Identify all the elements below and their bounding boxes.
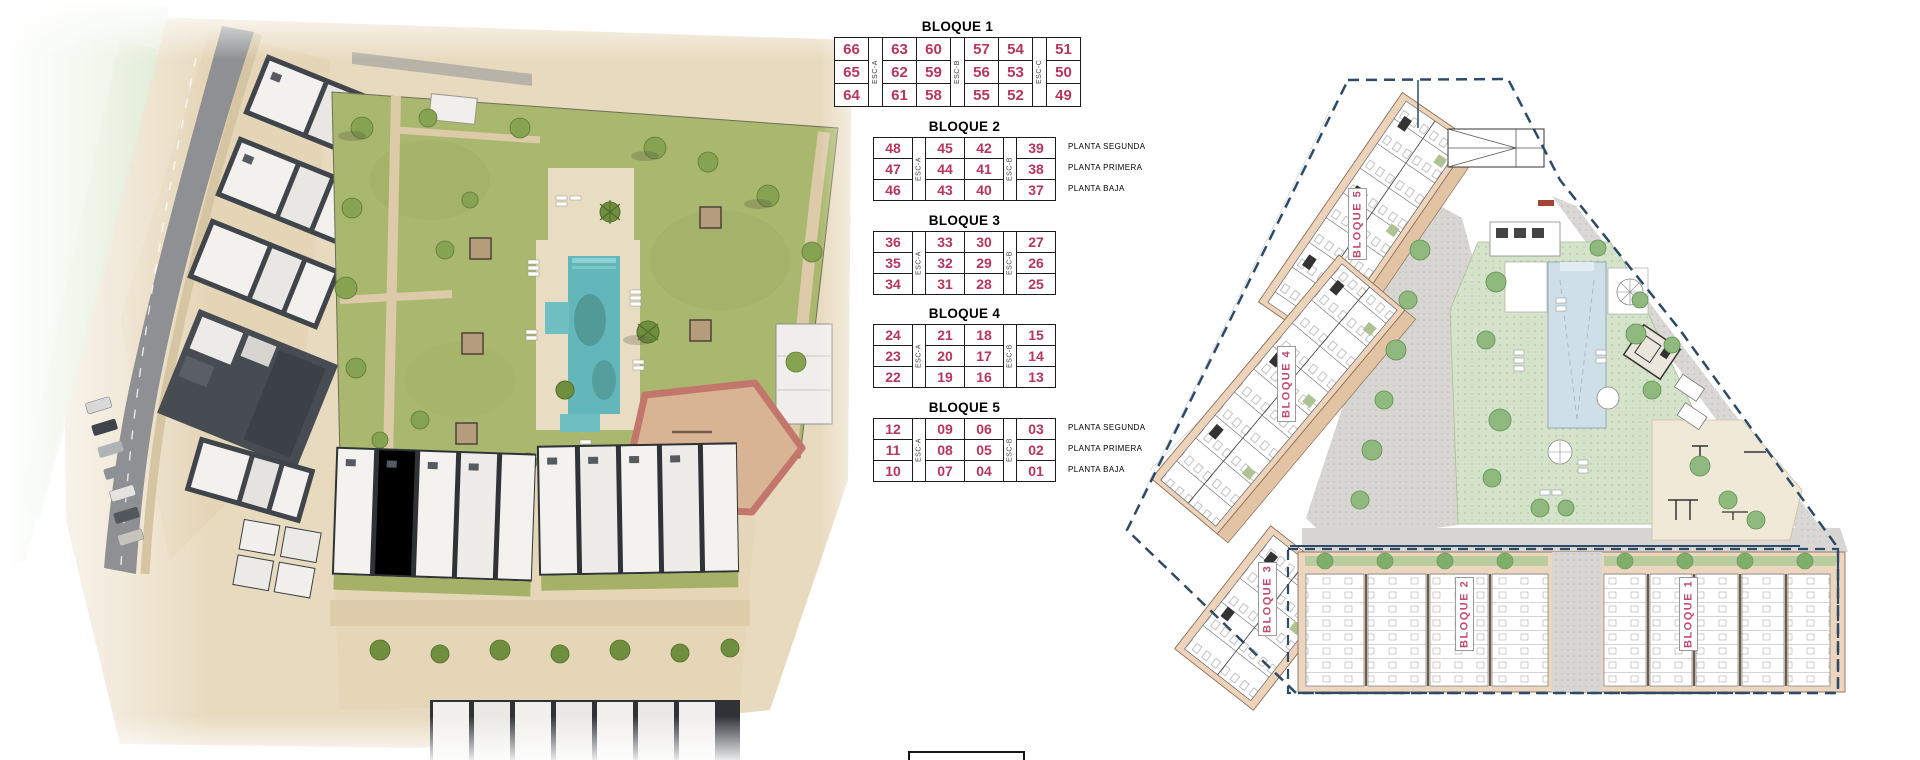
planta-label: PLANTA SEGUNDA xyxy=(1068,142,1145,151)
unit-cell[interactable]: 41 xyxy=(965,159,1003,179)
fade-bottom xyxy=(0,716,880,760)
unit-cell[interactable]: 64 xyxy=(835,84,868,106)
stair-label: ESC-A xyxy=(913,419,925,481)
plan-playground xyxy=(1652,420,1802,540)
planta-label: PLANTA PRIMERA xyxy=(1068,444,1142,453)
unit-cell[interactable]: 30 xyxy=(965,232,1003,252)
plan-label-bloque-4: BLOQUE 4 xyxy=(1277,346,1296,422)
unit-cell[interactable]: 19 xyxy=(926,367,964,387)
unit-cell[interactable]: 05 xyxy=(965,440,1003,460)
unit-cell[interactable]: 14 xyxy=(1017,346,1055,366)
bloque-table-3: BLOQUE 3ESC-AESC-B3633302735322926343128… xyxy=(873,213,1056,295)
aerial-render xyxy=(0,0,880,760)
unit-cell[interactable]: 06 xyxy=(965,419,1003,439)
unit-cell[interactable]: 51 xyxy=(1047,38,1080,60)
unit-cell[interactable]: 40 xyxy=(965,180,1003,200)
plan-pool xyxy=(1548,262,1606,428)
stair-label: ESC-B xyxy=(1004,325,1016,387)
unit-cell[interactable]: 17 xyxy=(965,346,1003,366)
unit-cell[interactable]: 33 xyxy=(926,232,964,252)
unit-cell[interactable]: 62 xyxy=(883,61,916,83)
fade-top xyxy=(0,0,880,60)
unit-cell[interactable]: 44 xyxy=(926,159,964,179)
unit-cell[interactable]: 58 xyxy=(917,84,950,106)
unit-cell[interactable]: 45 xyxy=(926,138,964,158)
unit-cell[interactable]: 11 xyxy=(874,440,912,460)
stair-label: ESC-B xyxy=(1004,232,1016,294)
planta-label: PLANTA BAJA xyxy=(1068,184,1125,193)
unit-cell[interactable]: 66 xyxy=(835,38,868,60)
unit-cell[interactable]: 34 xyxy=(874,274,912,294)
unit-cell[interactable]: 01 xyxy=(1017,461,1055,481)
unit-cell[interactable]: 42 xyxy=(965,138,1003,158)
terraced-row xyxy=(537,442,740,590)
table-title: BLOQUE 4 xyxy=(873,306,1056,321)
unit-cell[interactable]: 27 xyxy=(1017,232,1055,252)
unit-cell[interactable]: 13 xyxy=(1017,367,1055,387)
unit-cell[interactable]: 63 xyxy=(883,38,916,60)
unit-cell[interactable]: 16 xyxy=(965,367,1003,387)
unit-cell[interactable]: 07 xyxy=(926,461,964,481)
unit-cell[interactable]: 20 xyxy=(926,346,964,366)
unit-cell[interactable]: 39 xyxy=(1017,138,1055,158)
building-bloque-2-1 xyxy=(1298,552,1845,692)
bloque-table-1: BLOQUE 1ESC-AESC-BESC-C66636057545165625… xyxy=(834,19,1081,107)
unit-cell[interactable]: 43 xyxy=(926,180,964,200)
site-plan-page: BLOQUE 1ESC-AESC-BESC-C66636057545165625… xyxy=(0,0,1920,760)
stair-label: ESC-A xyxy=(869,38,882,106)
table-title: BLOQUE 2 xyxy=(873,119,1056,134)
unit-cell[interactable]: 12 xyxy=(874,419,912,439)
unit-cell[interactable]: 37 xyxy=(1017,180,1055,200)
stair-label: ESC-C xyxy=(1033,38,1046,106)
fade-right xyxy=(820,0,880,760)
unit-cell[interactable]: 38 xyxy=(1017,159,1055,179)
stair-label: ESC-B xyxy=(1004,138,1016,200)
unit-cell[interactable]: 46 xyxy=(874,180,912,200)
unit-cell[interactable]: 56 xyxy=(965,61,998,83)
unit-cell[interactable]: 47 xyxy=(874,159,912,179)
table-title: BLOQUE 3 xyxy=(873,213,1056,228)
unit-cell[interactable]: 35 xyxy=(874,253,912,273)
bloque-table-4: BLOQUE 4ESC-AESC-B2421181523201714221916… xyxy=(873,306,1056,388)
unit-cell[interactable]: 03 xyxy=(1017,419,1055,439)
unit-cell[interactable]: 21 xyxy=(926,325,964,345)
unit-cell[interactable]: 15 xyxy=(1017,325,1055,345)
unit-cell[interactable]: 54 xyxy=(999,38,1032,60)
unit-cell[interactable]: 08 xyxy=(926,440,964,460)
stair-label: ESC-A xyxy=(913,138,925,200)
ramp-box xyxy=(1448,129,1544,167)
table-title: BLOQUE 5 xyxy=(873,400,1056,415)
partial-table-box xyxy=(908,751,1025,760)
plan-label-bloque-1: BLOQUE 1 xyxy=(1679,577,1698,651)
unit-cell[interactable]: 09 xyxy=(926,419,964,439)
unit-cell[interactable]: 32 xyxy=(926,253,964,273)
unit-cell[interactable]: 60 xyxy=(917,38,950,60)
unit-cell[interactable]: 59 xyxy=(917,61,950,83)
planta-label: PLANTA BAJA xyxy=(1068,465,1125,474)
unit-cell[interactable]: 10 xyxy=(874,461,912,481)
unit-cell[interactable]: 28 xyxy=(965,274,1003,294)
unit-cell[interactable]: 23 xyxy=(874,346,912,366)
unit-cell[interactable]: 04 xyxy=(965,461,1003,481)
plan-label-bloque-5: BLOQUE 5 xyxy=(1348,188,1367,260)
unit-cell[interactable]: 57 xyxy=(965,38,998,60)
stair-label: ESC-A xyxy=(913,232,925,294)
unit-cell[interactable]: 49 xyxy=(1047,84,1080,106)
unit-cell[interactable]: 22 xyxy=(874,367,912,387)
unit-cell[interactable]: 24 xyxy=(874,325,912,345)
unit-cell[interactable]: 31 xyxy=(926,274,964,294)
unit-cell[interactable]: 25 xyxy=(1017,274,1055,294)
table-title: BLOQUE 1 xyxy=(834,19,1081,34)
stair-label: ESC-A xyxy=(913,325,925,387)
unit-cell[interactable]: 36 xyxy=(874,232,912,252)
unit-cell[interactable]: 29 xyxy=(965,253,1003,273)
unit-cell[interactable]: 26 xyxy=(1017,253,1055,273)
unit-cell[interactable]: 18 xyxy=(965,325,1003,345)
plan-label-bloque-2: BLOQUE 2 xyxy=(1455,577,1474,651)
stair-label: ESC-B xyxy=(1004,419,1016,481)
unit-cell[interactable]: 55 xyxy=(965,84,998,106)
plan-label-bloque-3: BLOQUE 3 xyxy=(1258,562,1277,636)
planta-label: PLANTA PRIMERA xyxy=(1068,163,1142,172)
unit-cell[interactable]: 02 xyxy=(1017,440,1055,460)
stair-label: ESC-B xyxy=(951,38,964,106)
bloque-table-5: BLOQUE 5ESC-AESC-B1209060311080502100704… xyxy=(873,400,1056,482)
bloque-table-2: BLOQUE 2ESC-AESC-B4845423947444138464340… xyxy=(873,119,1056,201)
unit-cell[interactable]: 52 xyxy=(999,84,1032,106)
unit-cell[interactable]: 50 xyxy=(1047,61,1080,83)
unit-cell[interactable]: 53 xyxy=(999,61,1032,83)
unit-cell[interactable]: 65 xyxy=(835,61,868,83)
unit-cell[interactable]: 61 xyxy=(883,84,916,106)
terraced-row xyxy=(331,447,536,597)
unit-cell[interactable]: 48 xyxy=(874,138,912,158)
planta-label: PLANTA SEGUNDA xyxy=(1068,423,1145,432)
